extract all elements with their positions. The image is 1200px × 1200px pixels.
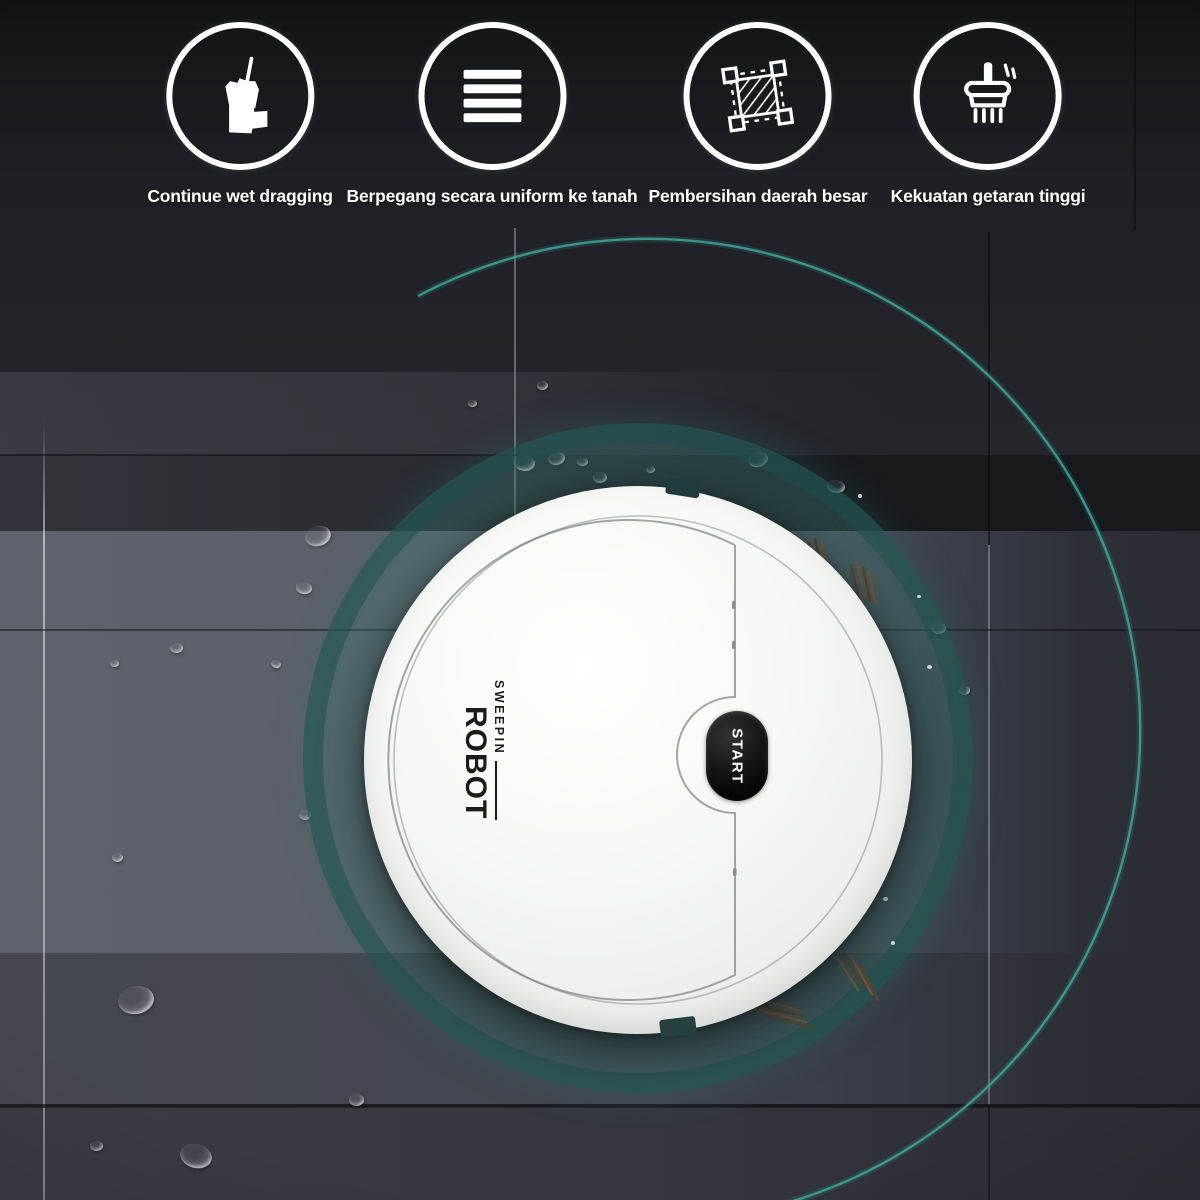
brand-underline bbox=[495, 761, 497, 820]
mop-bucket-icon bbox=[198, 54, 282, 138]
brand-line2: ROBOT bbox=[460, 706, 490, 820]
feature-label: Continue wet dragging bbox=[147, 186, 332, 207]
feature-uniform-grip: Berpegang secara uniform ke tanah bbox=[347, 22, 638, 207]
feature-icon-circle bbox=[684, 22, 832, 170]
water-droplet bbox=[170, 643, 183, 653]
tile-grout-line bbox=[0, 454, 520, 456]
tile-grout-line bbox=[988, 1105, 990, 1200]
disc-speckle bbox=[891, 941, 895, 945]
tile-grout-line bbox=[0, 1104, 1200, 1108]
feature-label: Berpegang secara uniform ke tanah bbox=[347, 186, 638, 207]
tile-grout-line bbox=[988, 232, 990, 545]
tile-grout-line bbox=[1134, 0, 1136, 230]
disc-speckle bbox=[927, 665, 932, 669]
large-area-clean-icon bbox=[716, 54, 800, 138]
feature-icon-circle bbox=[418, 22, 566, 170]
disc-speckle bbox=[858, 494, 862, 498]
robot-brand-text: SWEEPIN ROBOT bbox=[450, 680, 506, 820]
feature-large-area: Pembersihan daerah besar bbox=[649, 22, 868, 207]
water-droplet bbox=[349, 1094, 364, 1106]
feature-label: Pembersihan daerah besar bbox=[649, 186, 868, 207]
water-droplet bbox=[468, 400, 477, 407]
water-droplet bbox=[90, 1141, 103, 1151]
feature-icon-circle bbox=[914, 22, 1062, 170]
robot-vacuum-product-image: START SWEEPIN ROBOT Continue wet draggin… bbox=[0, 0, 1200, 1200]
feature-wet-dragging: Continue wet dragging bbox=[147, 22, 332, 207]
start-button-label: START bbox=[728, 728, 745, 784]
feature-high-vibration: Kekuatan getaran tinggi bbox=[891, 22, 1086, 207]
robot-vacuum-body bbox=[364, 486, 912, 1034]
brand-line1: SWEEPIN bbox=[492, 680, 506, 755]
water-droplet bbox=[112, 853, 123, 862]
feature-label: Kekuatan getaran tinggi bbox=[891, 186, 1086, 207]
water-droplet bbox=[537, 381, 548, 390]
brand-line1-row: SWEEPIN bbox=[492, 680, 506, 820]
start-button: START bbox=[706, 711, 768, 801]
tile-grout-line bbox=[43, 420, 45, 1200]
vibration-brush-icon bbox=[946, 54, 1030, 138]
ground-grip-bars-icon bbox=[450, 54, 534, 138]
disc-speckle bbox=[883, 897, 888, 901]
disc-speckle bbox=[917, 595, 921, 598]
feature-icon-circle bbox=[166, 22, 314, 170]
water-droplet bbox=[110, 660, 119, 667]
